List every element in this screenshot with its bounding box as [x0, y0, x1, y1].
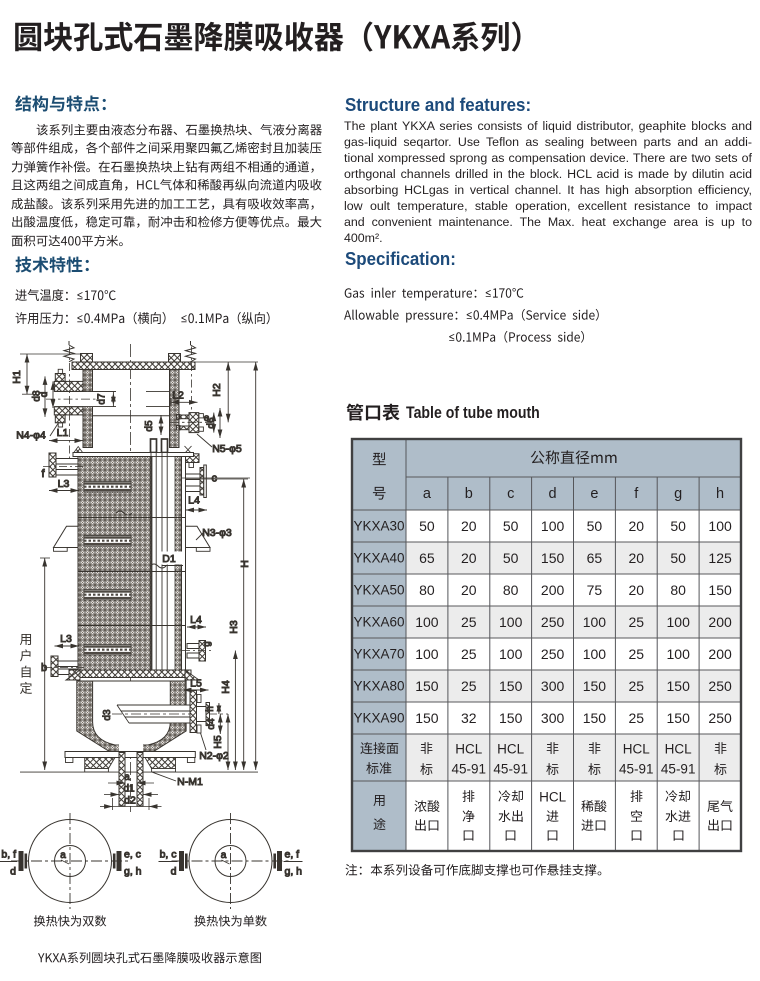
svg-text:L1: L1	[57, 427, 69, 439]
svg-text:c: c	[212, 473, 218, 485]
svg-text:L2: L2	[172, 390, 184, 402]
svg-text:L4: L4	[188, 495, 200, 507]
svg-text:N4-φ4: N4-φ4	[16, 430, 46, 442]
svg-text:e, c: e, c	[124, 849, 141, 861]
svg-text:g: g	[202, 641, 213, 646]
svg-text:h: h	[205, 706, 216, 712]
svg-text:D1: D1	[162, 553, 176, 565]
svg-text:d7: d7	[97, 393, 108, 405]
svg-text:d: d	[171, 866, 177, 878]
svg-text:d: d	[39, 392, 50, 398]
svg-text:b, f: b, f	[1, 849, 16, 861]
svg-text:g, h: g, h	[124, 866, 142, 878]
svg-text:N-M1: N-M1	[177, 776, 203, 788]
svg-text:L3: L3	[60, 633, 72, 645]
svg-text:N2-φ2: N2-φ2	[199, 750, 229, 762]
svg-text:H4: H4	[220, 680, 232, 694]
svg-text:L3: L3	[58, 478, 70, 490]
svg-text:L5: L5	[190, 678, 202, 690]
svg-text:H3: H3	[228, 620, 240, 634]
svg-text:N5-φ5: N5-φ5	[212, 443, 242, 455]
svg-text:L4: L4	[190, 614, 202, 626]
svg-text:e, f: e, f	[285, 849, 300, 861]
svg-text:N3-φ3: N3-φ3	[202, 527, 232, 539]
svg-text:d2: d2	[124, 795, 136, 807]
svg-text:d: d	[10, 866, 16, 878]
svg-text:g, h: g, h	[285, 866, 303, 878]
svg-text:b: b	[41, 662, 47, 674]
svg-text:a: a	[124, 772, 130, 783]
svg-text:f: f	[41, 468, 45, 480]
svg-text:H5: H5	[212, 735, 224, 749]
svg-text:H: H	[239, 560, 251, 568]
svg-text:H1: H1	[11, 370, 23, 384]
svg-text:d6: d6	[206, 417, 217, 429]
svg-text:a: a	[221, 850, 227, 861]
svg-text:d4: d4	[206, 718, 217, 730]
svg-text:d1: d1	[123, 784, 135, 795]
svg-text:H2: H2	[211, 383, 223, 397]
svg-text:a: a	[60, 850, 66, 861]
svg-text:d3: d3	[102, 709, 113, 721]
svg-text:d5: d5	[144, 420, 155, 432]
svg-text:b, c: b, c	[160, 849, 177, 861]
